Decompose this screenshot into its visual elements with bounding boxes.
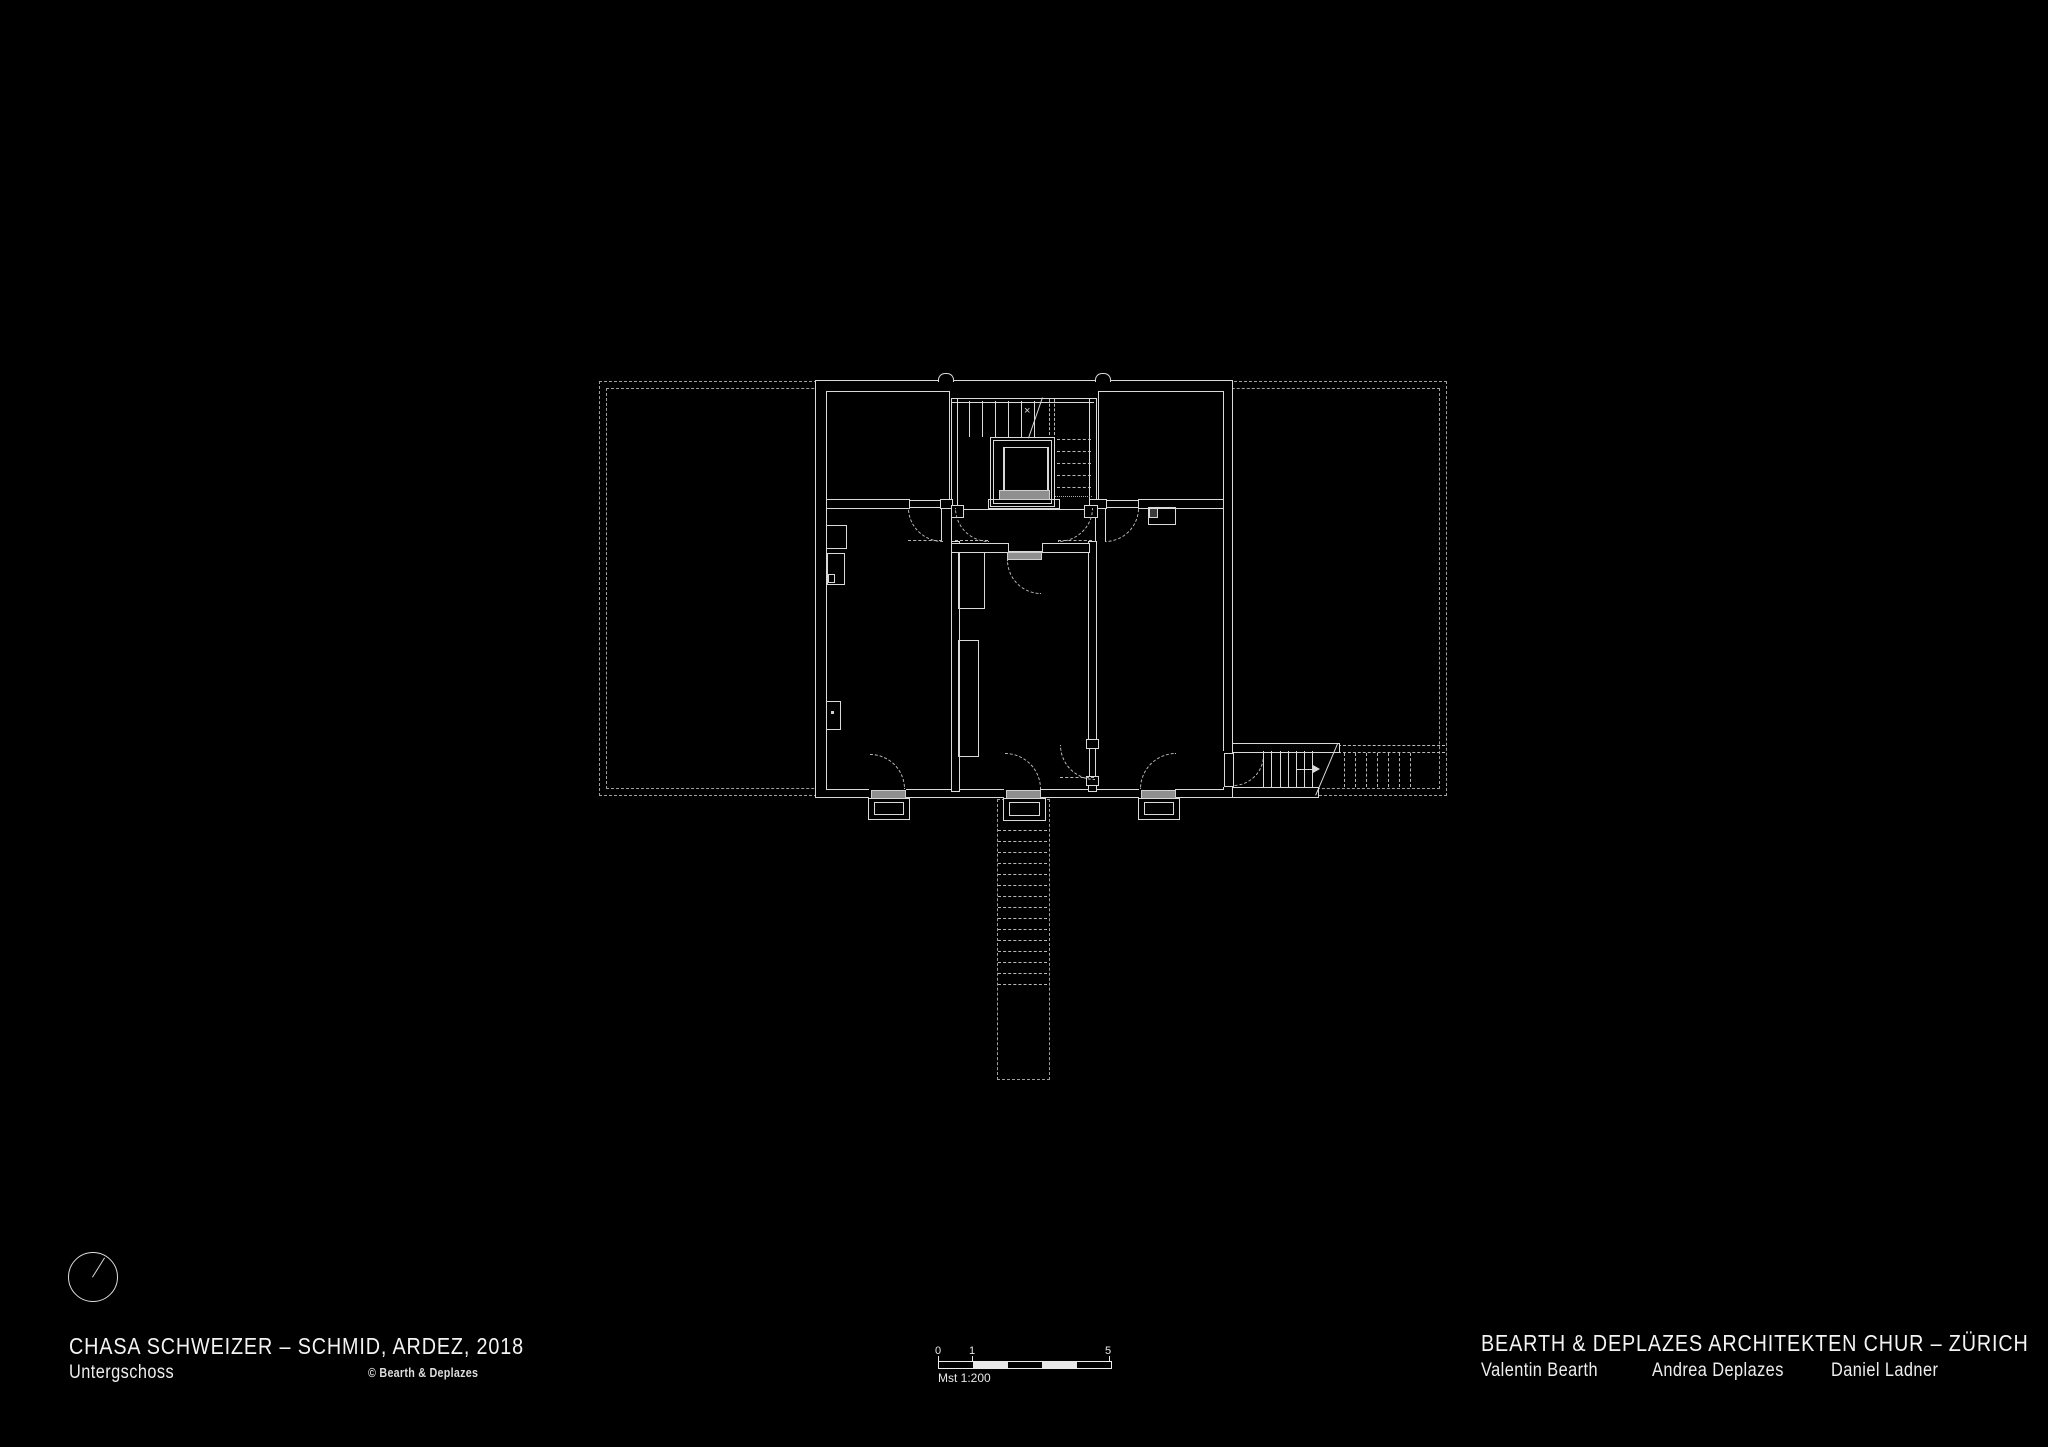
scale-label: Mst 1:200	[938, 1371, 991, 1385]
entry-step-inner	[1009, 802, 1040, 816]
east-stair-tread	[1280, 751, 1281, 788]
stair-dashed-tread	[1049, 399, 1050, 435]
scale-bar-segment	[1042, 1362, 1077, 1368]
east-stair-south-wall	[1232, 787, 1319, 798]
east-stair-dashed-tread	[1377, 753, 1378, 787]
partner-name: Valentin Bearth	[1481, 1360, 1598, 1382]
east-stair-arrow-line	[1297, 769, 1313, 770]
room-southeast	[1095, 507, 1224, 790]
stair-tread	[982, 401, 983, 437]
door-leaf	[941, 508, 942, 541]
upper-flight-dashed	[1057, 475, 1091, 476]
room-northwest	[826, 391, 950, 501]
south-stair-tread	[998, 962, 1047, 963]
room-southwest	[826, 507, 952, 790]
room-northeast	[1098, 391, 1224, 501]
door-leaf	[1105, 508, 1106, 541]
south-stair-tread	[998, 863, 1047, 864]
stair-tread	[995, 401, 996, 437]
east-stair-tread	[1263, 751, 1264, 788]
project-title: CHASA SCHWEIZER – SCHMID, ARDEZ, 2018	[69, 1333, 524, 1360]
east-stair-dashed-tread	[1366, 753, 1367, 787]
copyright-label: © Bearth & Deplazes	[368, 1366, 478, 1380]
south-stair-tread	[998, 841, 1047, 842]
door-chord	[1060, 777, 1094, 778]
stair-hall-inner-wall	[1089, 398, 1090, 508]
stair-cut-mark: ×	[1024, 405, 1030, 417]
south-stair-tread	[998, 852, 1047, 853]
stair-tread	[1008, 401, 1009, 437]
south-stair-tread	[998, 951, 1047, 952]
entry-step-inner	[1144, 802, 1174, 815]
fixture-center-upper	[958, 552, 985, 609]
upper-flight-dashed	[1057, 487, 1091, 488]
scale-bar: 0 1 5 Mst 1:200	[938, 1345, 1110, 1385]
south-stair-tread	[998, 929, 1047, 930]
wall-h1	[826, 499, 910, 509]
floor-label: Untergschoss	[69, 1362, 174, 1384]
east-stair-dashed-tread	[1388, 753, 1389, 787]
stair-dashed-tread	[1054, 399, 1055, 435]
door-leaf-center	[1007, 552, 1042, 560]
stair-hall-inner-wall	[957, 398, 958, 508]
stair-tread	[1021, 401, 1022, 437]
wall-corridor-east	[1088, 541, 1097, 748]
partner-name: Daniel Ladner	[1831, 1360, 1938, 1382]
upper-flight-dashed	[1057, 439, 1091, 440]
east-stair-arrowhead	[1313, 765, 1320, 773]
stair-tread	[969, 401, 970, 437]
fixture-center-duct	[958, 640, 979, 757]
east-stair-dashed-tread	[1399, 753, 1400, 787]
wall-h2	[1042, 543, 1090, 553]
fixture-southeast-detail	[1149, 508, 1158, 518]
east-stair-dashed-tread	[1344, 753, 1345, 787]
partner-name: Andrea Deplazes	[1652, 1360, 1784, 1382]
east-stair-north-wall	[1232, 743, 1340, 753]
window-niche	[826, 701, 841, 730]
scale-bar-body	[938, 1361, 1112, 1369]
door-chord	[908, 540, 942, 541]
east-stair-dashed-tread	[1355, 753, 1356, 787]
elevator-door	[999, 490, 1050, 500]
drawing-sheet: ×	[0, 0, 2048, 1447]
scale-bar-segment	[973, 1362, 1008, 1368]
east-stair-tread	[1288, 751, 1289, 788]
south-stair-tread	[998, 830, 1047, 831]
upper-flight-dashed	[1057, 451, 1091, 452]
south-stair-tread	[998, 918, 1047, 919]
south-stair-tread	[998, 896, 1047, 897]
east-stair-dashed-edge	[1338, 745, 1445, 746]
door-chord	[1058, 540, 1092, 541]
north-wall-bump	[1095, 373, 1111, 382]
upper-flight-dashed	[1057, 463, 1091, 464]
north-wall-bump	[938, 373, 954, 382]
south-stair-tread	[998, 973, 1047, 974]
firm-name: BEARTH & DEPLAZES ARCHITEKTEN CHUR – ZÜR…	[1481, 1330, 2029, 1357]
entry-step-inner	[874, 802, 904, 815]
east-stair-dashed-tread	[1410, 753, 1411, 787]
window-niche-detail	[828, 574, 835, 583]
window-niche	[826, 525, 847, 549]
door-chord	[955, 540, 988, 541]
south-stair-tread	[998, 874, 1047, 875]
south-stair-tread	[998, 940, 1047, 941]
south-stair-tread	[998, 984, 1047, 985]
stair-hall-inner-wall	[952, 402, 1094, 403]
east-stair-tread	[1271, 751, 1272, 788]
south-stair-tread	[998, 907, 1047, 908]
niche-dot	[831, 711, 834, 714]
break-line	[1055, 496, 1092, 497]
south-stair-tread	[998, 885, 1047, 886]
